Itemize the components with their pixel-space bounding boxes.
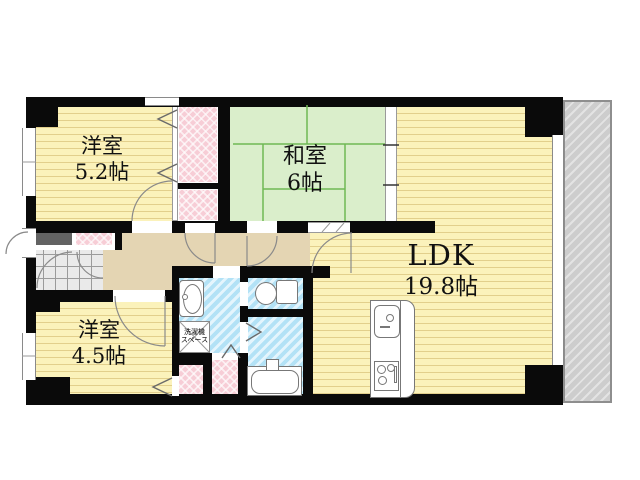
room-name: 洋室 (42, 134, 162, 160)
laundry-line1: 洗濯機 (180, 328, 209, 336)
room-size: 5.2帖 (42, 160, 162, 186)
laundry-space-label: 洗濯機 スペース (180, 328, 209, 344)
ldk-label: LDK 19.8帖 (380, 238, 502, 301)
room-name: 和室 (245, 144, 365, 171)
bedroom2-label: 洋室 4.5帖 (39, 318, 159, 369)
room-size: 4.5帖 (39, 344, 159, 370)
line-work (0, 0, 640, 480)
room-size: 6帖 (245, 171, 365, 198)
floor-plan: 洋室 5.2帖 和室 6帖 LDK 19.8帖 洋室 4.5帖 洗濯機 スペース (0, 0, 640, 480)
room-name: 洋室 (39, 318, 159, 344)
room-name: LDK (380, 238, 502, 273)
laundry-line2: スペース (180, 336, 209, 344)
room-size: 19.8帖 (380, 273, 502, 301)
bedroom1-label: 洋室 5.2帖 (42, 134, 162, 185)
partition-ticks (383, 145, 399, 185)
washitsu-label: 和室 6帖 (245, 144, 365, 198)
